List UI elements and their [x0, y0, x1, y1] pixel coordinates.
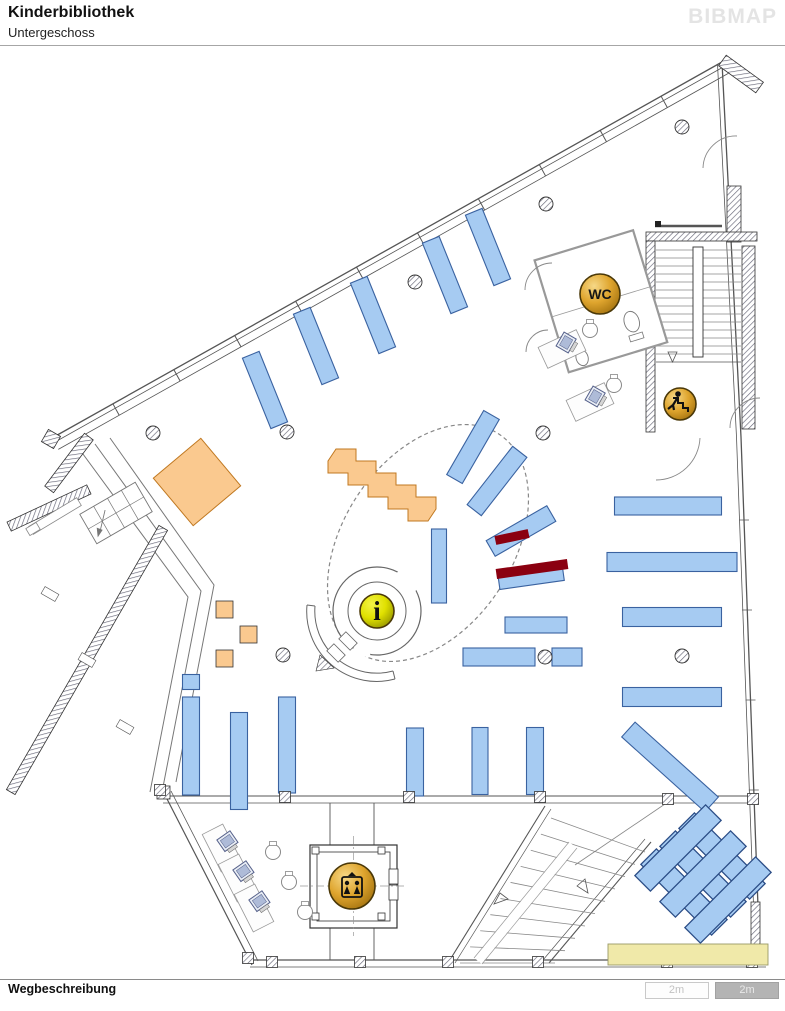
bookshelf: [407, 728, 424, 796]
floorplan-map[interactable]: WCi: [0, 46, 785, 979]
wall-pier: [748, 794, 759, 805]
column: [536, 426, 550, 440]
stair-treads-bottom: [460, 818, 645, 964]
bookshelf: [242, 351, 287, 428]
column: [675, 649, 689, 663]
wall-pier: [155, 785, 166, 796]
bookshelf: [552, 648, 582, 666]
wall-pier: [243, 953, 254, 964]
bookshelf: [527, 728, 544, 795]
bookshelf: [422, 236, 467, 313]
yellow-bench-layer: [608, 944, 768, 965]
map-scalebar: 2m 2m: [645, 982, 779, 1000]
bookshelf: [183, 675, 200, 690]
chair: [607, 378, 622, 393]
floor-subtitle: Untergeschoss: [8, 25, 95, 40]
play-cube: [240, 626, 257, 643]
chair-back: [270, 842, 277, 846]
bookshelf: [623, 608, 722, 627]
bookshelf: [615, 497, 722, 515]
header: Kinderbibliothek Untergeschoss BIBMAP: [0, 0, 785, 46]
bench: [608, 944, 768, 965]
elevator-icon[interactable]: [329, 863, 375, 909]
play-podium: [153, 438, 240, 525]
bookshelf: [183, 697, 200, 795]
staircase-bottom: [448, 806, 651, 964]
wall-pier: [663, 794, 674, 805]
ramp-landing: [80, 482, 152, 543]
wall-pier: [443, 957, 454, 968]
scale-segment-1: 2m: [645, 982, 709, 999]
bookshelf: [279, 697, 296, 793]
bookshelf: [623, 688, 722, 707]
column: [675, 120, 689, 134]
chair-back: [611, 375, 618, 379]
wall-pier: [280, 792, 291, 803]
chair-back: [286, 872, 293, 876]
chair: [583, 323, 598, 338]
column: [539, 197, 553, 211]
bookshelf: [293, 307, 338, 384]
wc-icon[interactable]: WC: [580, 274, 620, 314]
column: [146, 426, 160, 440]
stairs-down-icon[interactable]: [664, 388, 696, 420]
scale-segment-2: 2m: [715, 982, 779, 999]
bibmap-logo: BIBMAP: [688, 5, 777, 29]
wall-pier: [355, 957, 366, 968]
info-label: i: [373, 596, 381, 626]
wall-pier: [535, 792, 546, 803]
column: [276, 648, 290, 662]
bookshelf: [350, 276, 395, 353]
column: [408, 275, 422, 289]
bookshelf: [465, 208, 510, 285]
chair-back: [302, 902, 309, 906]
chair-back: [587, 320, 594, 324]
play-cube: [216, 650, 233, 667]
bookshelf: [231, 713, 248, 810]
chair: [282, 875, 297, 890]
wall-pier: [267, 957, 278, 968]
bookshelf: [463, 648, 535, 666]
bookshelf: [607, 553, 737, 572]
footer: Wegbeschreibung 2m 2m: [0, 979, 785, 1006]
chair: [298, 905, 313, 920]
info-icon[interactable]: i: [360, 594, 394, 628]
column: [280, 425, 294, 439]
bookshelf: [432, 529, 447, 603]
bookshelf: [472, 728, 488, 795]
play-cube: [216, 601, 233, 618]
wall-pier: [404, 792, 415, 803]
wc-label: WC: [588, 286, 611, 302]
wall-pier: [533, 957, 544, 968]
column: [538, 650, 552, 664]
bookshelf: [505, 617, 567, 633]
chair: [266, 845, 281, 860]
route-description-link[interactable]: Wegbeschreibung: [8, 982, 116, 996]
page-title: Kinderbibliothek: [8, 4, 134, 22]
